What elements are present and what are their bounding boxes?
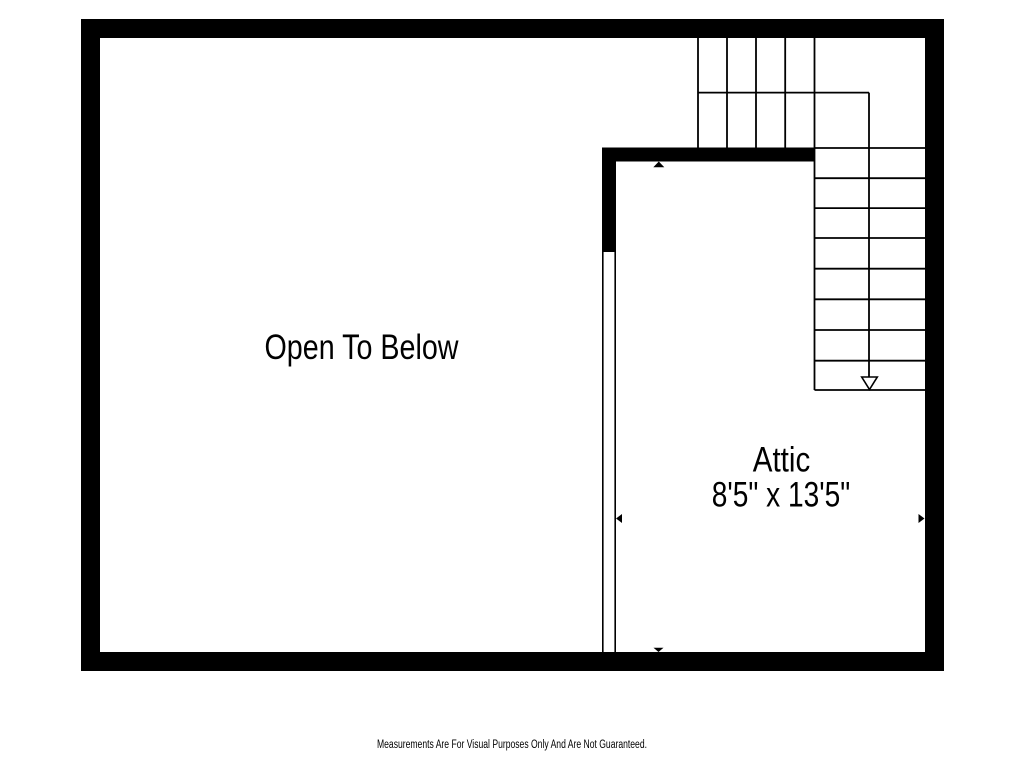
svg-text:8'5" x 13'5": 8'5" x 13'5" bbox=[712, 476, 851, 515]
svg-text:Attic: Attic bbox=[753, 441, 811, 480]
svg-text:Measurements Are For Visual Pu: Measurements Are For Visual Purposes Onl… bbox=[377, 739, 647, 751]
svg-text:Open To Below: Open To Below bbox=[265, 328, 460, 367]
